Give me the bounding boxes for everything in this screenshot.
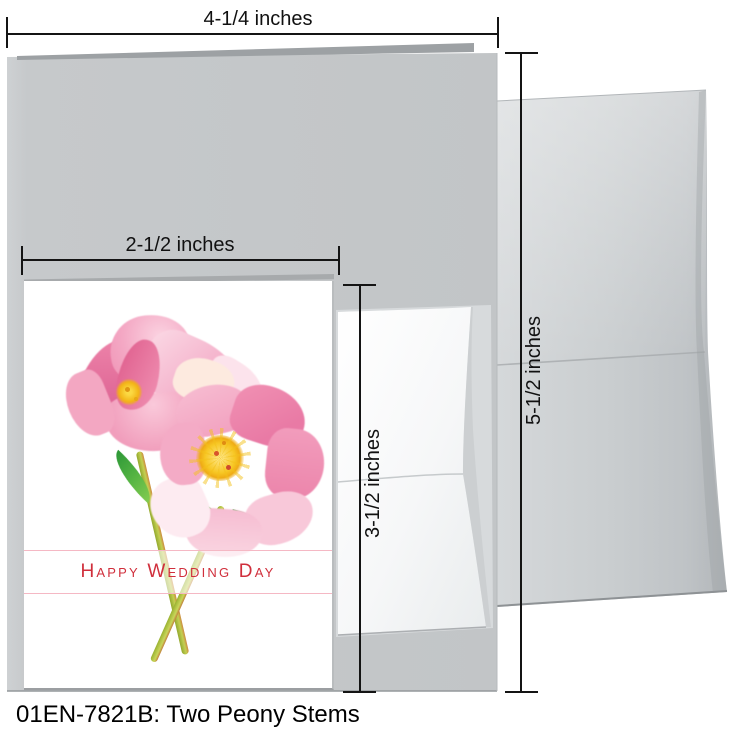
dimension-tick: [6, 17, 8, 48]
dimension-line-note-width: [22, 259, 339, 261]
product-mockup: Happy Wedding Day 4-1/4 inches 2-1/2 inc…: [0, 0, 738, 738]
dimension-tick: [505, 52, 538, 54]
dimension-tick: [505, 691, 538, 693]
stamen-dot: [226, 465, 231, 470]
dimension-tick: [343, 691, 376, 693]
stamen-dot: [134, 397, 138, 401]
stamen-dot: [125, 387, 130, 392]
dimension-line-note-height: [359, 285, 361, 693]
peony-petal: [263, 426, 328, 502]
dimension-label-card-width: 4-1/4 inches: [158, 8, 358, 31]
peony-stamen: [196, 435, 244, 481]
dimension-line-card-height: [520, 53, 522, 693]
greeting-banner: Happy Wedding Day: [24, 550, 332, 594]
dimension-label-card-height: 5-1/2 inches: [523, 305, 547, 437]
greeting-card: Happy Wedding Day: [22, 273, 336, 693]
dimension-label-note-height: 3-1/2 inches: [362, 418, 384, 550]
dimension-tick: [21, 246, 23, 275]
dimension-label-note-width: 2-1/2 inches: [85, 234, 275, 257]
stamen-dot: [214, 451, 219, 456]
greeting-text: Happy Wedding Day: [24, 551, 332, 593]
dimension-tick: [343, 284, 376, 286]
dimension-tick: [497, 17, 499, 48]
dimension-tick: [338, 246, 340, 275]
stamen-dot: [222, 441, 226, 445]
product-caption: 01EN-7821B: Two Peony Stems: [16, 701, 360, 729]
dimension-line-card-width: [7, 33, 499, 35]
greeting-card-front: Happy Wedding Day: [24, 281, 334, 690]
peony-stamen: [116, 379, 142, 405]
